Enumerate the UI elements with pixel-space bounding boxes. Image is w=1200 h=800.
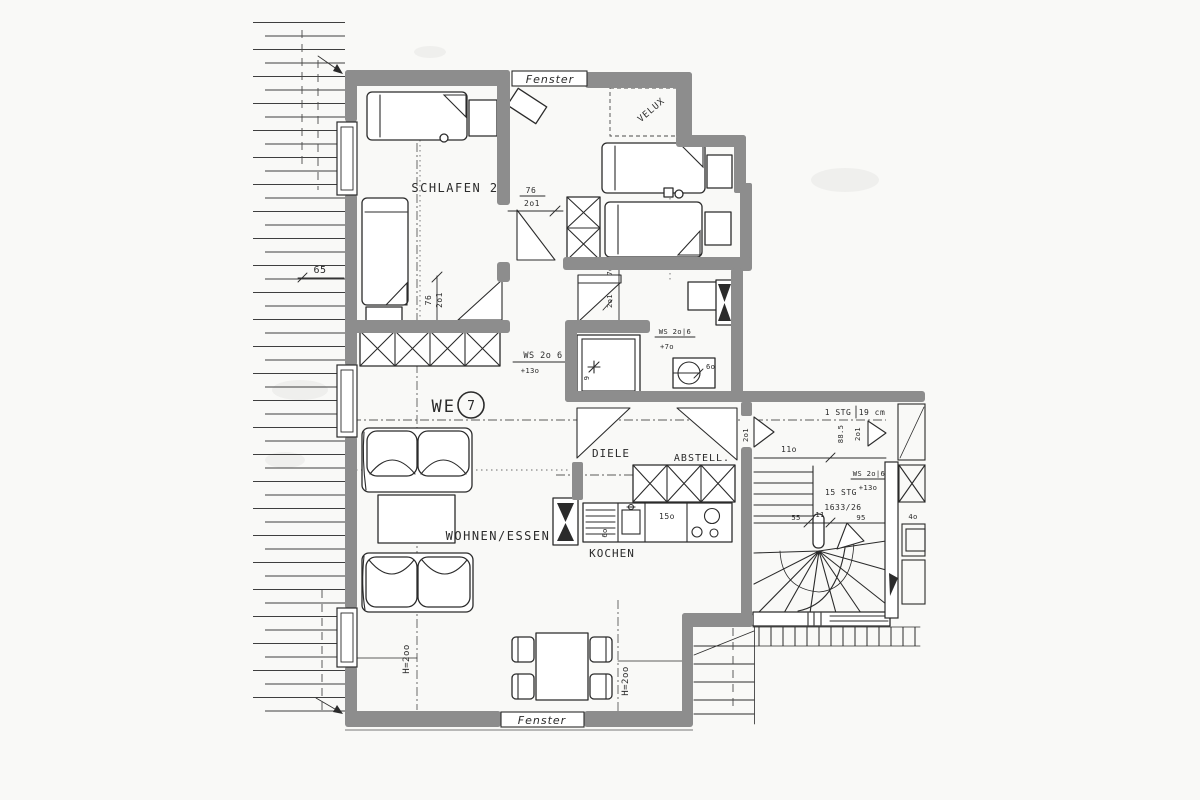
hatch-pattern-area [253, 18, 345, 716]
room-label-abstell: ABSTELL. [674, 453, 730, 464]
dim-entry-width: 11o [781, 445, 797, 454]
window-left [337, 122, 357, 195]
shaft-bad [716, 280, 733, 325]
dim-counter-depth: 6o [600, 528, 609, 537]
shower: 9 [577, 335, 640, 395]
dim-h200-left: H=2oo [402, 644, 412, 674]
room-diele-abstell: DIELE ABSTELL. [577, 408, 737, 464]
dim-neighbor-4o: 4o [908, 512, 917, 521]
stair-landing-strip [753, 612, 890, 626]
wall [497, 70, 510, 205]
wall [345, 666, 357, 723]
window-label-fenster-bottom: Fenster [518, 714, 567, 727]
room-label-kochen: KOCHEN [589, 547, 635, 560]
velux-roof-window: VELUX [610, 88, 678, 136]
wall [741, 447, 752, 617]
unit-number: 7 [467, 399, 475, 414]
window-left [337, 365, 357, 437]
wall [345, 436, 357, 609]
nightstand [705, 212, 731, 245]
annotation-ws-bad: WS 2o|6 +7o [655, 327, 695, 351]
dim-step-width: 88.5 [836, 425, 845, 444]
wall [565, 391, 925, 402]
dim-wc: 6o [706, 362, 715, 371]
svg-text:2o1: 2o1 [741, 428, 750, 442]
dim-door-kinder: 76 2o1 [508, 186, 563, 216]
svg-text:1 STG: 1 STG [825, 408, 852, 417]
dim-h200-right: H=2oo [621, 666, 631, 696]
room-label-schlafen2: SCHLAFEN 2 [411, 181, 498, 195]
door-swing-schlafen2 [458, 280, 502, 320]
annotation-ws-living: WS 2o 6 +13o [513, 351, 574, 375]
svg-text:+13o: +13o [859, 483, 878, 492]
window-top: Fenster [512, 71, 587, 86]
wall [345, 70, 357, 122]
landing-annotations: 1 STG 19 cm 88.5 2o1 WS 2o|6 +13o 15 STG… [754, 406, 888, 512]
svg-text:WS 2o|6: WS 2o|6 [853, 469, 885, 478]
wall [565, 320, 650, 333]
bed [602, 143, 705, 198]
wall [584, 711, 693, 727]
shaft-kitchen [553, 498, 578, 545]
sofa [362, 428, 472, 492]
neighbor-furniture [902, 560, 925, 604]
newel-post [813, 514, 824, 548]
wall [741, 402, 752, 416]
rug-sketch [507, 88, 546, 123]
coffee-table [378, 495, 455, 543]
wall [345, 320, 510, 333]
door-swing-stair-top [868, 421, 886, 446]
dim-door-schlafen2: 76 2o1 [424, 272, 444, 320]
svg-text:+7o: +7o [660, 342, 674, 351]
wall [345, 70, 510, 86]
dim-label-65: 65 [313, 265, 326, 276]
wall [563, 257, 752, 270]
neighbor-wardrobe [899, 465, 925, 502]
svg-text:WS 2o|6: WS 2o|6 [659, 327, 691, 336]
svg-text:+13o: +13o [521, 366, 540, 375]
room-schlafen2: SCHLAFEN 2 76 2o1 [362, 92, 502, 325]
door-swing-bad [578, 275, 621, 322]
neighbor-door-niche [898, 404, 925, 460]
nightstand [469, 100, 497, 136]
chair [590, 674, 612, 699]
dim-step-height: 2o1 [853, 427, 862, 441]
party-wall [885, 462, 898, 618]
wall [345, 711, 501, 727]
svg-text:2o1: 2o1 [524, 199, 540, 208]
dim-stair-95: 95 [856, 513, 865, 522]
dining-set: H=2oo H=2oo [402, 633, 631, 700]
chair [512, 637, 534, 662]
svg-text:76: 76 [526, 186, 537, 195]
wall [565, 322, 577, 402]
svg-text:1633/26: 1633/26 [824, 503, 861, 512]
svg-text:76: 76 [424, 295, 433, 306]
wall [731, 268, 743, 395]
wc: 6o [673, 358, 715, 388]
dim-stair-11: 11 [815, 510, 824, 519]
svg-text:15 STG: 15 STG [825, 488, 857, 497]
window-label-fenster-top: Fenster [526, 73, 575, 86]
svg-text:2o1: 2o1 [605, 294, 614, 308]
bed [362, 198, 408, 305]
svg-text:19 cm: 19 cm [859, 408, 886, 417]
wardrobe [567, 197, 600, 260]
room-wohnen: WS 2o 6 +13o WE 7 WOHNEN/ESSEN [360, 331, 574, 612]
washing-machine [688, 282, 718, 310]
floorplan-svg: 65 [0, 0, 1200, 800]
bed [367, 92, 467, 142]
dim-stair-55: 55 [791, 513, 800, 522]
room-label-diele: DIELE [592, 447, 630, 460]
roof-hatch-band: 65 [253, 18, 345, 716]
velux-label: VELUX [636, 96, 667, 124]
neighbor-fragment: 4o [885, 404, 925, 618]
chair [512, 674, 534, 699]
door-swing-kinder [517, 210, 555, 260]
wall-cabinets [633, 465, 735, 502]
wardrobe-row [360, 331, 500, 366]
room-kinder: VELUX 76 2o1 [507, 88, 732, 260]
unit-label: WE [432, 397, 456, 417]
neighbor-furniture [906, 529, 925, 551]
chair [590, 637, 612, 662]
floorplan-page: 65 [0, 0, 1200, 800]
wall [676, 72, 692, 139]
wall [345, 194, 357, 366]
svg-text:2o1: 2o1 [435, 292, 444, 308]
unit-label-we7: WE 7 [432, 392, 484, 418]
room-label-wohnen-essen: WOHNEN/ESSEN [446, 529, 551, 543]
kitchen-counter: 15o 6o [583, 503, 732, 542]
nightstand [707, 155, 732, 188]
window-left [337, 608, 357, 667]
dining-table [536, 633, 588, 700]
wall [497, 262, 510, 282]
wall [585, 72, 692, 88]
bed [605, 202, 702, 257]
windows: Fenster Fenster [337, 71, 587, 727]
window-bottom: Fenster [501, 712, 584, 727]
wall [572, 462, 583, 500]
stair-flight-down [694, 627, 755, 724]
dim-counter: 15o [659, 512, 675, 521]
sofa [362, 553, 473, 612]
stair-tick-row [753, 627, 920, 646]
dim-shower: 9 [582, 376, 591, 381]
wall [682, 613, 693, 725]
svg-text:WS 2o 6: WS 2o 6 [523, 351, 562, 361]
